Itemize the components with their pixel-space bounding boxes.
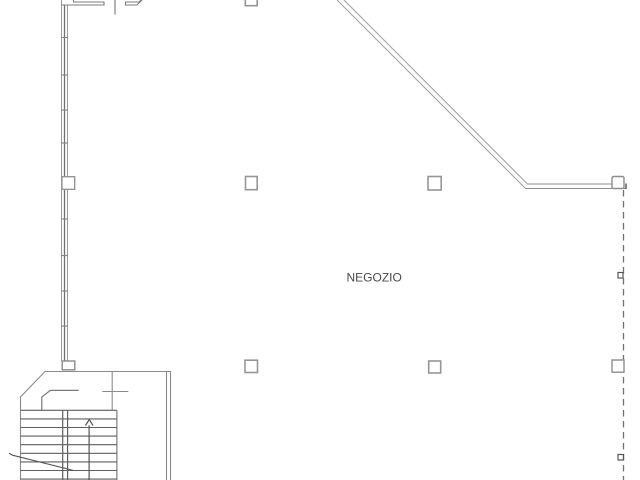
svg-text:NEGOZIO: NEGOZIO bbox=[347, 271, 402, 285]
